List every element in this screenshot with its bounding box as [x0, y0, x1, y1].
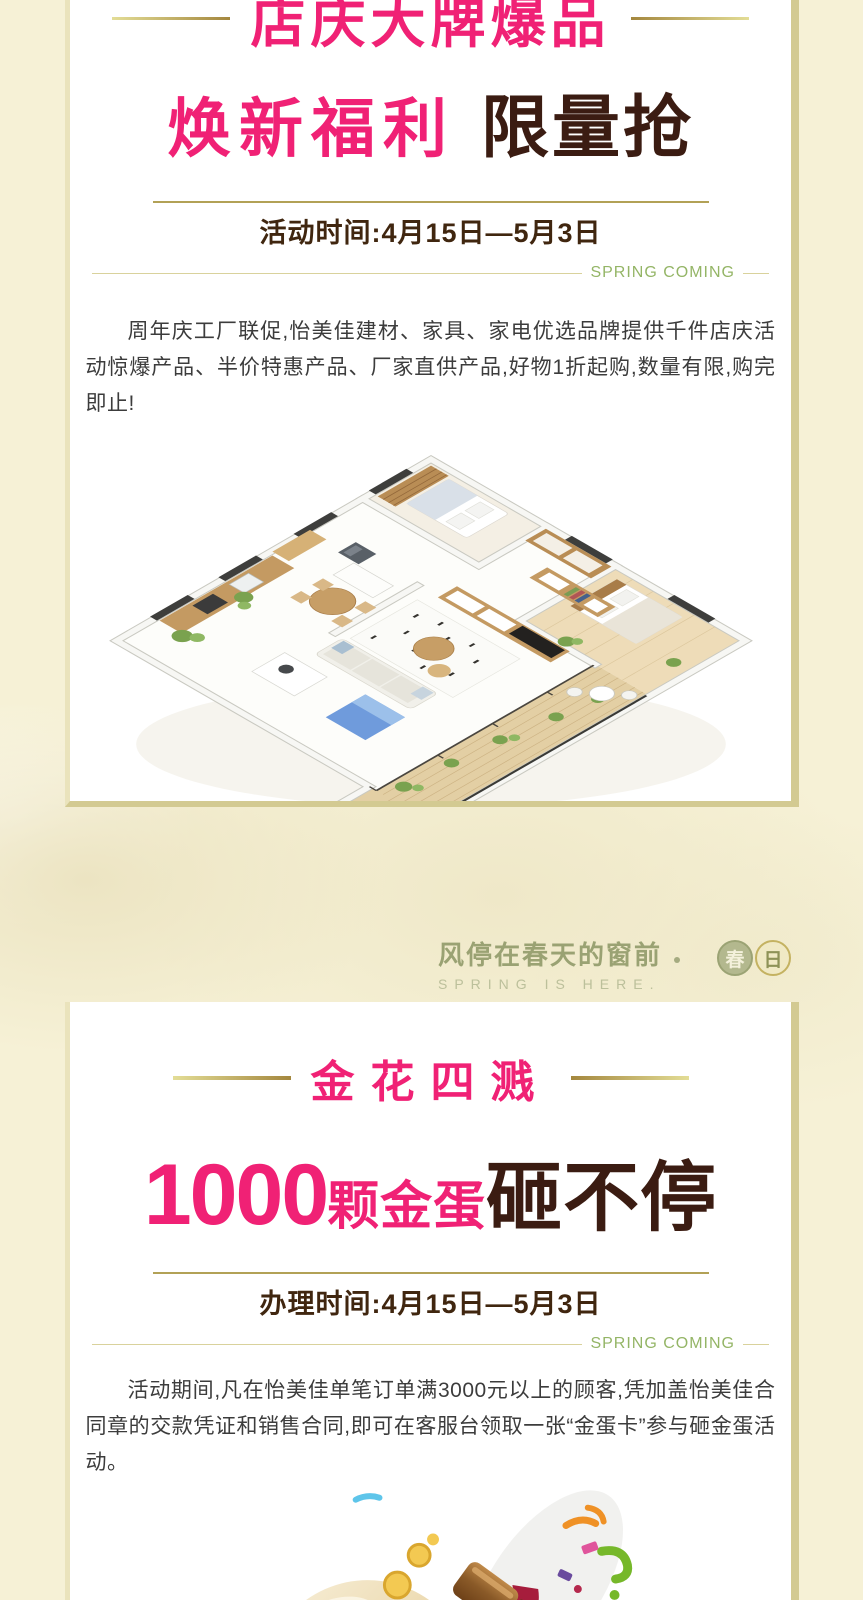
badge-spring: 春 — [717, 940, 753, 976]
gold-divider-line — [112, 17, 230, 20]
section-title: 店庆大牌爆品 — [250, 0, 610, 58]
section-title: 金花四溅 — [311, 1046, 551, 1110]
thin-gold-line — [743, 1344, 769, 1345]
promo-description: 活动期间,凡在怡美佳单笔订单满3000元以上的顾客,凭加盖怡美佳合同章的交款凭证… — [86, 1373, 776, 1481]
badge-day: 日 — [755, 940, 791, 976]
headline-pink: 焕新福利 — [167, 93, 455, 165]
golden-egg-gavel-image[interactable] — [70, 1485, 799, 1600]
thin-gold-line — [743, 273, 769, 274]
headline-dark: 限量抢 — [481, 90, 694, 166]
promo-card-golden-egg: 金花四溅 1000颗金蛋砸不停 办理时间:4月15日—5月3日 SPRING C… — [65, 1002, 799, 1600]
promo-card-flash-sale: 店庆大牌爆品 焕新福利限量抢 活动时间:4月15日—5月3日 SPRING CO… — [65, 0, 799, 807]
gold-rule — [153, 1272, 709, 1274]
section-title-row: 金花四溅 — [70, 1046, 791, 1110]
spring-tagline-en: SPRING IS HERE. — [438, 976, 662, 992]
thin-gold-line — [92, 273, 582, 274]
headline-mid: 颗金蛋 — [327, 1164, 486, 1239]
schedule-label: 活动时间:4月15日—5月3日 — [70, 211, 791, 250]
apartment-floorplan-image[interactable] — [73, 430, 789, 807]
gold-divider-line — [631, 17, 749, 20]
watercolor-divider: 风停在春天的窗前 SPRING IS HERE. 春 日 — [0, 807, 863, 1002]
promo-description: 周年庆工厂联促,怡美佳建材、家具、家电优选品牌提供千件店庆活动惊爆产品、半价特惠… — [86, 314, 776, 422]
headline: 1000颗金蛋砸不停 — [70, 1136, 791, 1246]
thin-gold-line — [92, 1344, 582, 1345]
section-title-row: 店庆大牌爆品 — [70, 0, 791, 58]
spring-coming-label: SPRING COMING — [582, 264, 743, 282]
headline-dark: 砸不停 — [486, 1136, 717, 1246]
headline: 焕新福利限量抢 — [70, 72, 791, 171]
spring-tagline-cn: 风停在春天的窗前 — [438, 935, 662, 972]
spring-tagline: 风停在春天的窗前 SPRING IS HERE. — [438, 935, 662, 992]
headline-number: 1000 — [144, 1146, 327, 1245]
gold-divider-line — [571, 1076, 689, 1080]
spring-coming-row: SPRING COMING — [92, 1335, 769, 1353]
spring-coming-row: SPRING COMING — [92, 264, 769, 282]
gold-divider-line — [173, 1076, 291, 1080]
spring-coming-label: SPRING COMING — [582, 1335, 743, 1353]
dot-ornament — [674, 957, 680, 963]
gold-rule — [153, 201, 709, 203]
schedule-label: 办理时间:4月15日—5月3日 — [70, 1282, 791, 1321]
